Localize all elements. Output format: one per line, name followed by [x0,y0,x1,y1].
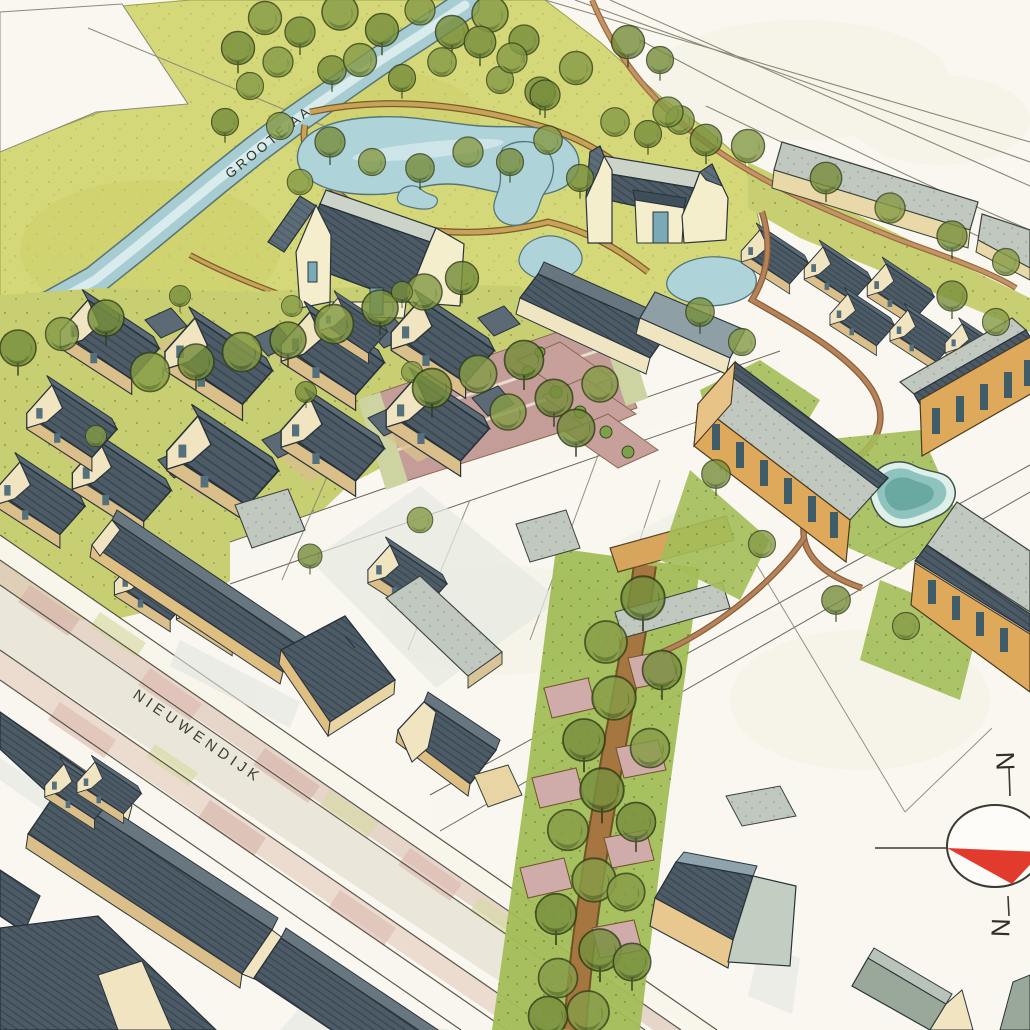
svg-text:N: N [985,918,1016,938]
svg-text:N: N [990,751,1021,771]
